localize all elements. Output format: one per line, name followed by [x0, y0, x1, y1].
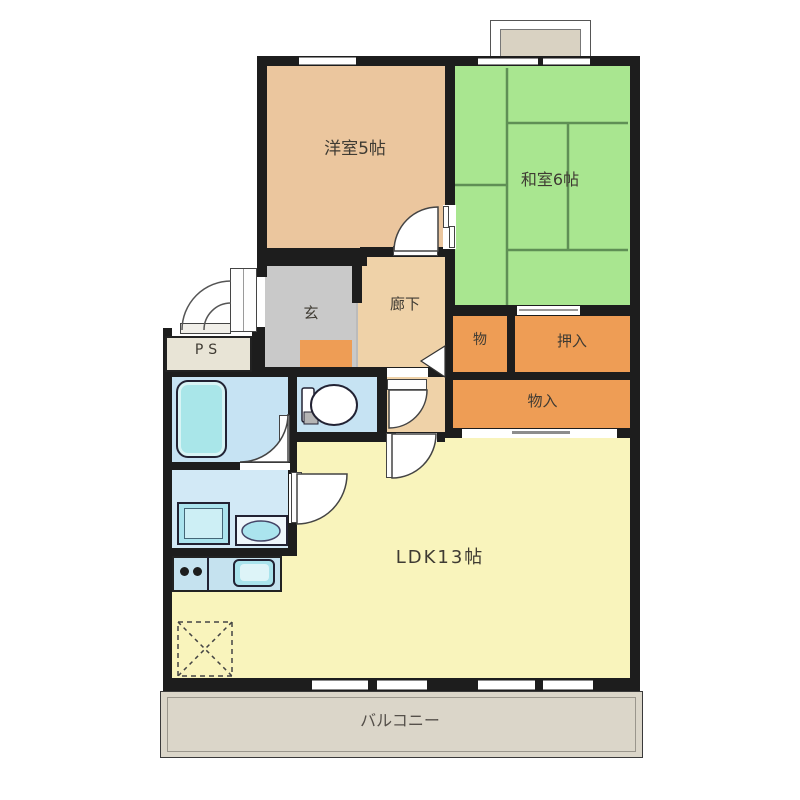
- label-entrance: 玄: [296, 305, 326, 322]
- doorway-opening: [240, 463, 290, 470]
- entrance-step-edge: [356, 303, 358, 370]
- wall-segment: [377, 367, 387, 442]
- room-western: [267, 66, 445, 255]
- window-opening: [543, 58, 590, 65]
- label-ldk: LDK13帖: [370, 548, 510, 568]
- wall-segment: [252, 327, 265, 375]
- sliding-door-icon: [449, 226, 455, 248]
- stove-burner: [193, 567, 202, 576]
- window-opening: [312, 680, 368, 690]
- label-balcony: バルコニー: [330, 712, 470, 730]
- wall-segment: [257, 56, 267, 277]
- kitchen-counter-divider: [207, 557, 209, 591]
- door-leaf-ldk: [386, 433, 396, 478]
- floor-plan: 洋室5帖 和室6帖 玄 廊下 PS 物 押入 物入 LDK13帖 バルコニー: [0, 0, 800, 800]
- label-western-room: 洋室5帖: [290, 140, 420, 159]
- wall-segment: [445, 56, 455, 316]
- wall-segment: [163, 328, 172, 691]
- label-closet: 押入: [537, 333, 607, 350]
- window-opening: [543, 680, 593, 690]
- label-hallway: 廊下: [375, 296, 435, 313]
- label-storage-large: 物入: [505, 393, 580, 410]
- washing-machine-drum: [184, 508, 223, 539]
- bathtub: [176, 380, 227, 458]
- doorway-opening: [390, 433, 437, 442]
- window-opening: [377, 680, 427, 690]
- label-japanese-room: 和室6帖: [485, 171, 615, 189]
- door-leaf-bath: [279, 415, 290, 462]
- window-opening: [478, 58, 538, 65]
- door-leaf-toilet: [387, 379, 427, 390]
- wall-segment: [352, 250, 362, 303]
- door-leaf-western: [393, 246, 438, 256]
- wall-segment: [507, 316, 515, 372]
- kitchen-sink-basin: [240, 564, 269, 581]
- stove-burner: [180, 567, 189, 576]
- wall-segment: [163, 548, 297, 556]
- entrance-threshold: [180, 323, 231, 334]
- sliding-door-icon: [512, 431, 570, 434]
- room-toilet: [297, 375, 377, 432]
- entrance-step: [300, 340, 352, 369]
- window-opening: [299, 57, 356, 65]
- sliding-door-icon: [443, 206, 449, 228]
- window-opening: [478, 680, 535, 690]
- wall-segment: [445, 372, 640, 380]
- doorway-opening: [387, 368, 428, 377]
- label-storage-small: 物: [460, 333, 500, 348]
- sliding-door-icon: [519, 309, 578, 311]
- label-pipe-space: PS: [168, 343, 249, 358]
- wall-segment: [257, 248, 367, 266]
- door-leaf-washroom: [291, 472, 302, 523]
- entrance-door-line: [243, 269, 244, 331]
